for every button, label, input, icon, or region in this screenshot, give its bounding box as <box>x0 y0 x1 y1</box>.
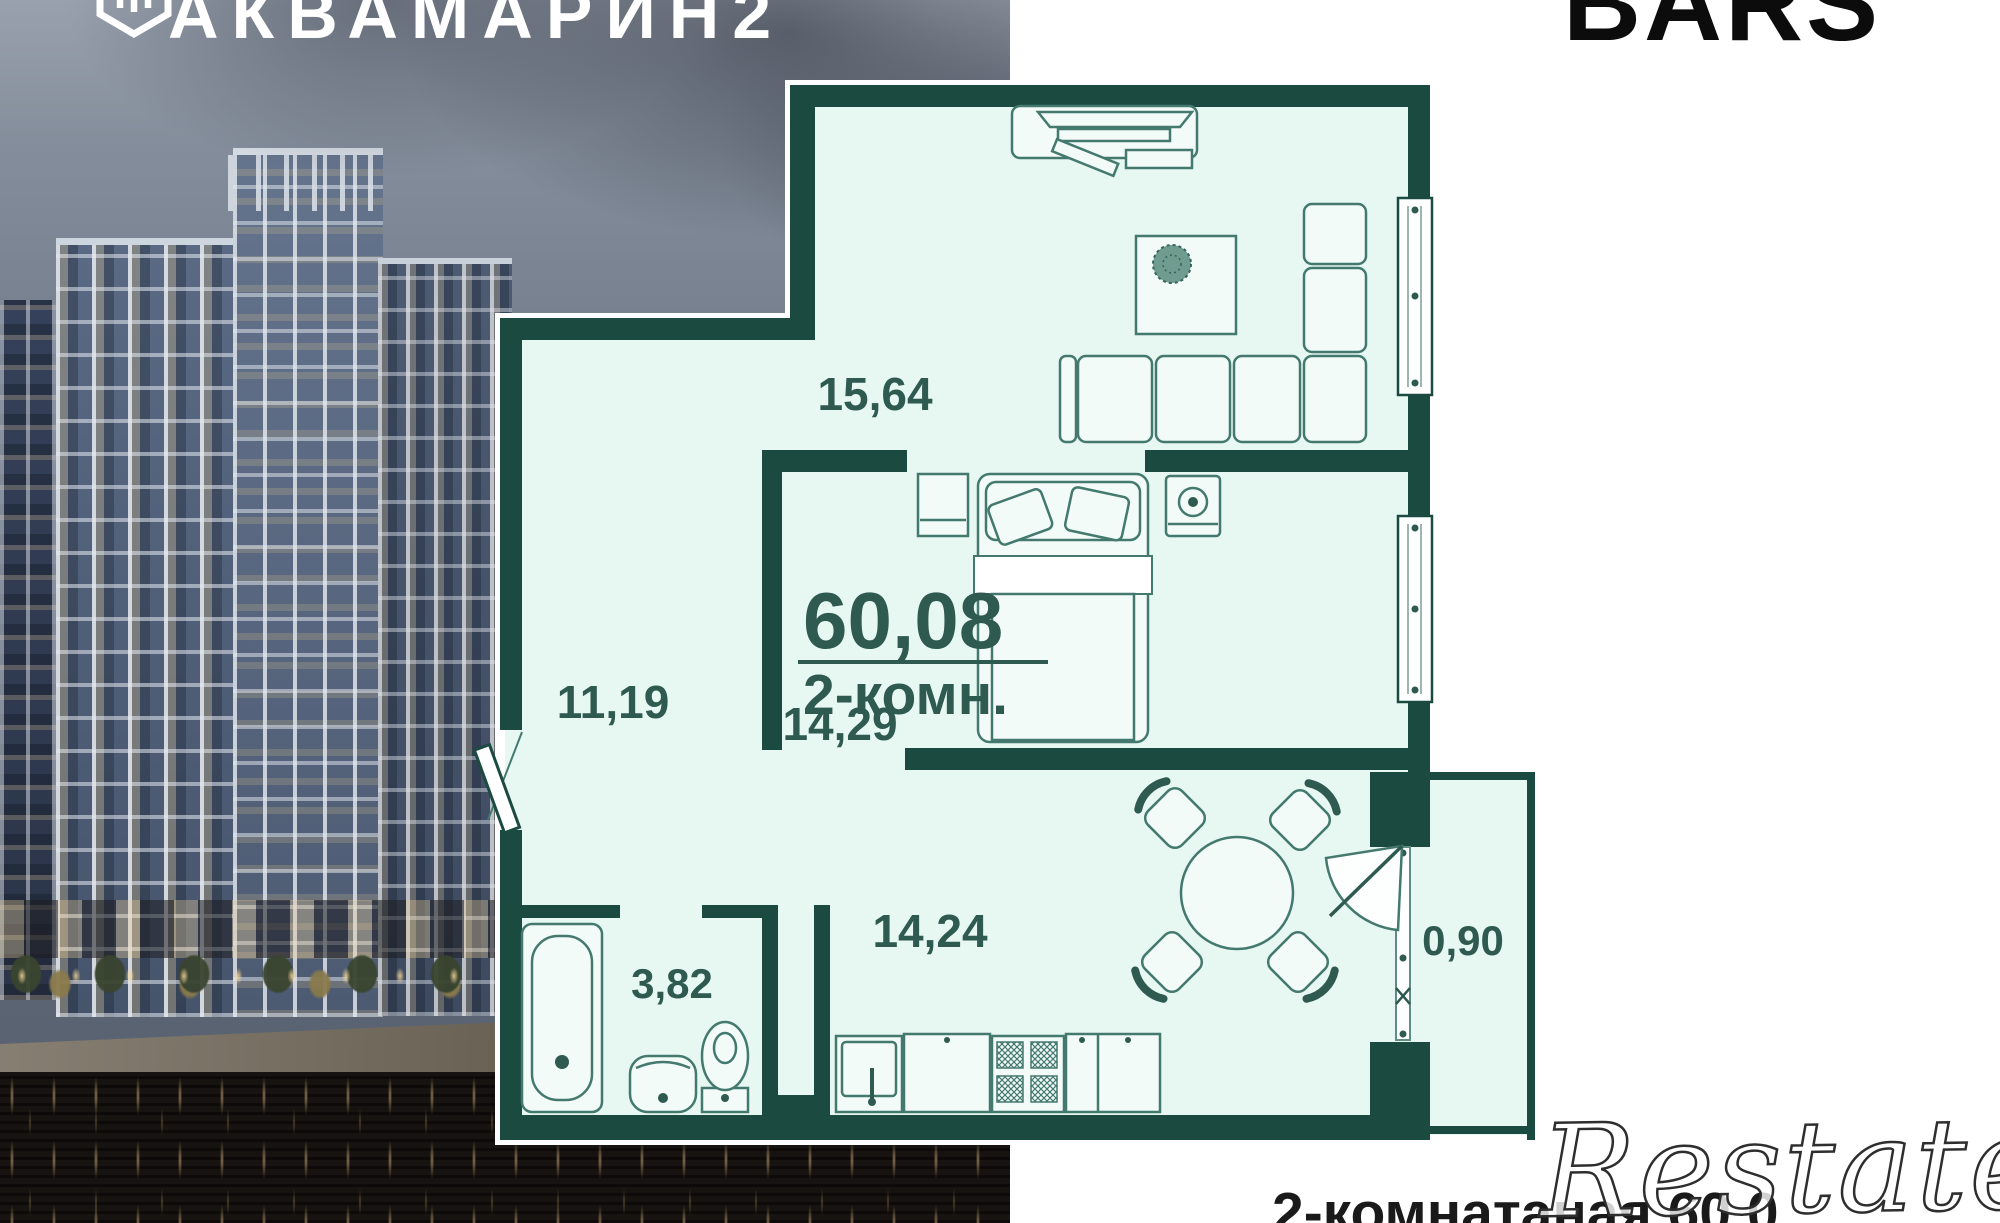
sink <box>630 1056 696 1112</box>
dining-table <box>1181 837 1293 949</box>
listing-image: АКВАМАРИН2 BARS <box>0 0 2000 1223</box>
living-room-area: 15,64 <box>817 368 933 420</box>
total-area-label: 60,08 <box>803 576 1003 665</box>
plant-table <box>1136 236 1236 334</box>
hallway-area: 11,19 <box>557 676 670 728</box>
bathtub <box>522 924 602 1112</box>
restate-watermark: Restate <box>1539 1090 2000 1223</box>
kitchen-area: 14,24 <box>872 905 988 957</box>
kitchen-counter <box>836 1034 1160 1112</box>
toilet <box>702 1022 748 1112</box>
bedroom-area: 14,29 <box>782 698 897 750</box>
living-room-window <box>1398 198 1432 395</box>
balcony-area: 0,90 <box>1422 917 1504 964</box>
bedroom-window <box>1398 516 1432 702</box>
bathroom-area: 3,82 <box>631 960 713 1007</box>
floor-plan: 60,08 2-комн. 15,64 14,29 11,19 14,24 3,… <box>0 0 2000 1223</box>
partner-logo-text: BARS <box>1563 0 1881 65</box>
washing-machine <box>1166 476 1220 536</box>
hexagon-emblem-icon <box>94 0 174 48</box>
nightstand <box>918 474 968 536</box>
developer-logo-text: АКВАМАРИН2 <box>168 0 784 54</box>
